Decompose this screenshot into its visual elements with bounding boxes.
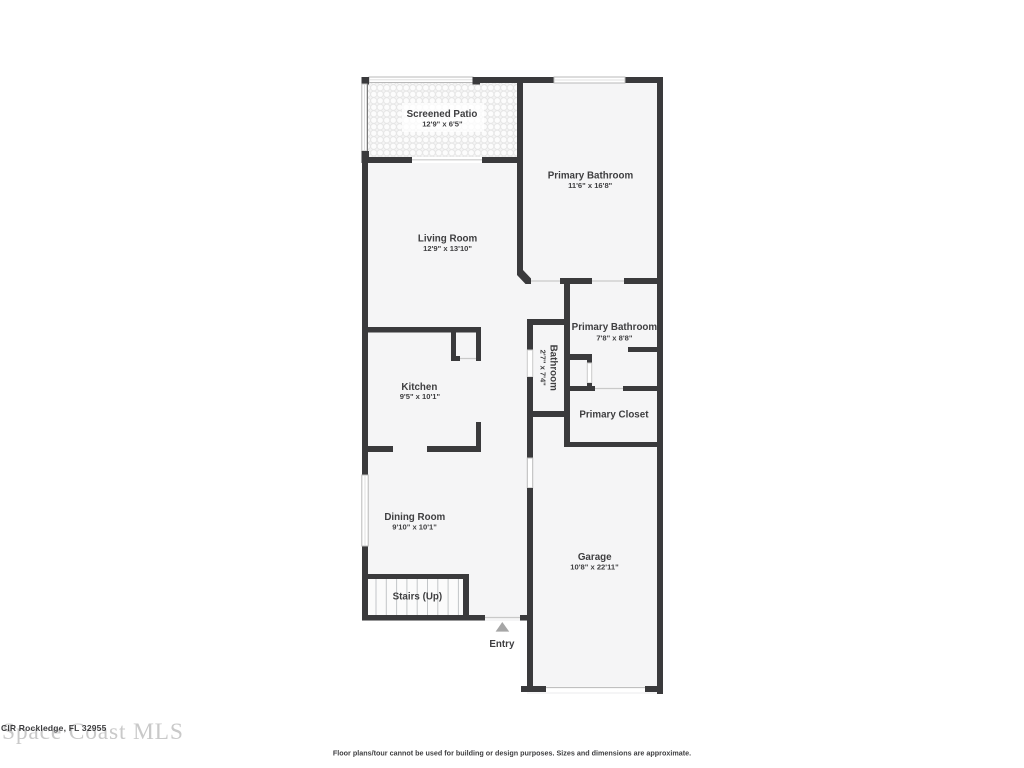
svg-text:9'10" x 10'1": 9'10" x 10'1" — [392, 523, 437, 532]
svg-text:Living Room: Living Room — [418, 234, 478, 245]
svg-text:Primary Bathroom: Primary Bathroom — [548, 171, 634, 182]
svg-text:9'5" x 10'1": 9'5" x 10'1" — [400, 392, 441, 401]
svg-text:10'8" x 22'11": 10'8" x 22'11" — [570, 562, 619, 571]
svg-text:11'6" x 16'8": 11'6" x 16'8" — [568, 181, 613, 190]
svg-text:Floor plans/tour cannot be use: Floor plans/tour cannot be used for buil… — [333, 749, 691, 758]
svg-text:CIR Rockledge, FL 32955: CIR Rockledge, FL 32955 — [1, 723, 107, 733]
svg-text:12'9" x 13'10": 12'9" x 13'10" — [423, 244, 472, 253]
svg-text:7'8" x 8'8": 7'8" x 8'8" — [596, 333, 633, 342]
svg-text:Screened Patio: Screened Patio — [407, 109, 478, 120]
svg-text:Entry: Entry — [489, 639, 515, 650]
svg-text:Primary Bathroom: Primary Bathroom — [572, 322, 658, 333]
svg-text:Dining Room: Dining Room — [384, 512, 445, 523]
svg-text:Stairs (Up): Stairs (Up) — [393, 592, 443, 603]
svg-text:Bathroom: Bathroom — [547, 345, 558, 392]
svg-text:Primary Closet: Primary Closet — [579, 409, 649, 420]
svg-text:2'7" x 7'4": 2'7" x 7'4" — [538, 350, 547, 387]
svg-text:12'9" x 6'5": 12'9" x 6'5" — [422, 119, 463, 128]
